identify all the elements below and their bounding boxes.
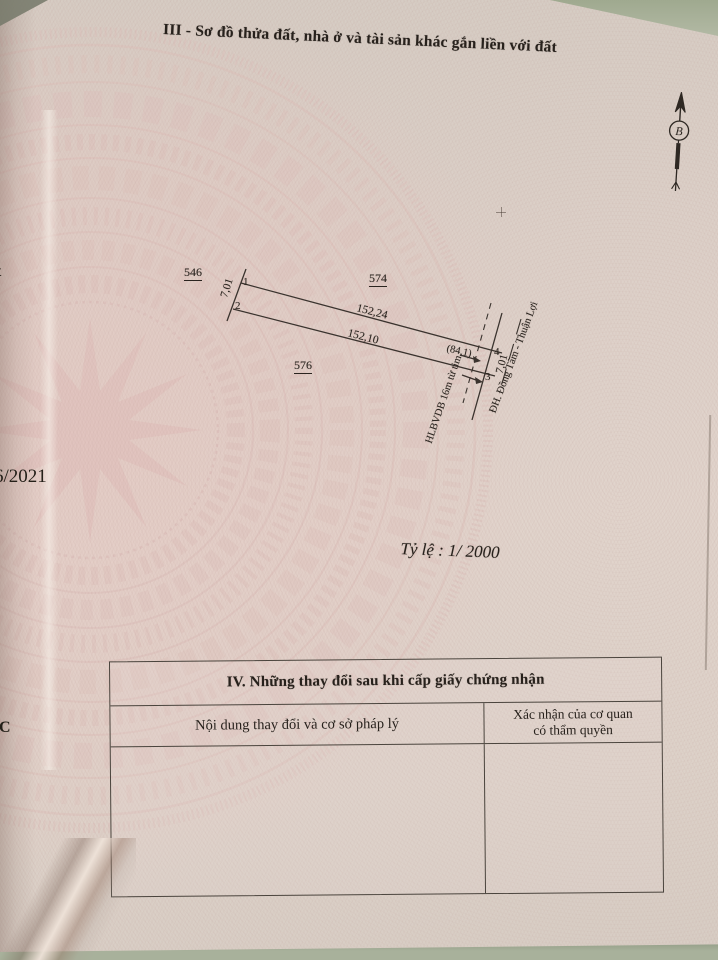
body-confirm-cell <box>485 743 663 894</box>
header-content-column: Nội dung thay đổi và cơ sở pháp lý <box>110 703 484 746</box>
north-label: B <box>675 124 684 138</box>
edge-fragment-letter: t <box>0 263 1 281</box>
parcel-576-label: 576 <box>294 358 312 374</box>
survey-cross-mark <box>496 207 506 217</box>
section4-table: IV. Những thay đổi sau khi cấp giấy chứn… <box>109 657 664 898</box>
body-content-cell <box>111 744 486 896</box>
corner-3-label: 3 <box>485 371 491 383</box>
edge-fragment-mark: 5C <box>0 719 11 737</box>
parcel-546-label: 546 <box>184 265 202 281</box>
page-corner-curl <box>0 838 136 960</box>
parcel-diagram: 546 574 576 1 2 4 3 7,01 7,01 152,24 152… <box>150 245 570 480</box>
north-arrow-icon: B <box>653 87 704 199</box>
table-surface-top-right <box>550 0 718 36</box>
section4-title: IV. Những thay đổi sau khi cấp giấy chứn… <box>110 658 661 706</box>
corner-1-label: 1 <box>243 276 249 288</box>
parcel-574-label: 574 <box>369 271 387 287</box>
section4-body-row <box>111 743 663 897</box>
header-confirm-column: Xác nhận của cơ quan có thẩm quyền <box>484 702 661 744</box>
edge-fragment-date: 6/2021 <box>0 466 47 488</box>
corner-2-label: 2 <box>235 300 241 312</box>
header-confirm-line2: có thẩm quyền <box>485 722 662 739</box>
header-confirm-line1: Xác nhận của cơ quan <box>484 706 661 723</box>
page-right-edge-line <box>705 415 711 670</box>
page-fold-highlight <box>40 110 58 770</box>
section4-header-row: Nội dung thay đổi và cơ sở pháp lý Xác n… <box>110 701 661 748</box>
photo-background: III - Sơ đồ thửa đất, nhà ở và tài sản k… <box>0 0 718 960</box>
